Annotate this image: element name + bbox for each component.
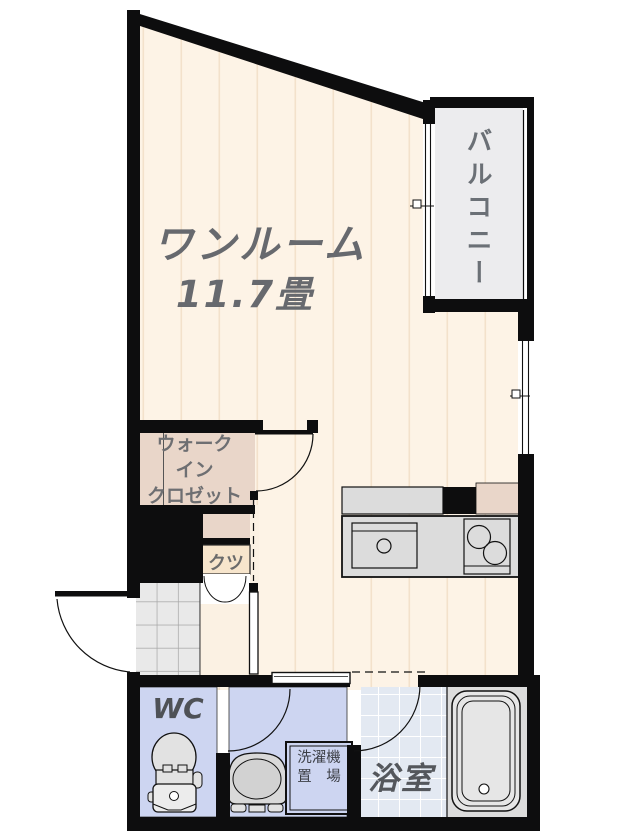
sink-icon [352,523,417,568]
hallway-partition-door [250,592,259,674]
washing-machine-area [286,742,352,814]
balcony-floor [434,107,523,301]
washroom-sliding-door [272,673,350,684]
entrance-door [55,591,137,672]
floor-plan-drawing [0,0,638,838]
washbasin-icon [228,753,286,812]
bathtub-icon [452,691,520,811]
stove-icon [464,519,510,574]
entrance-tile-floor [136,583,200,675]
shoe-cabinet [200,538,250,604]
floor-plan: ワンルーム 11.7畳 バルコニー ウォーク イン クロゼット クツ WC 洗濯… [0,0,638,838]
